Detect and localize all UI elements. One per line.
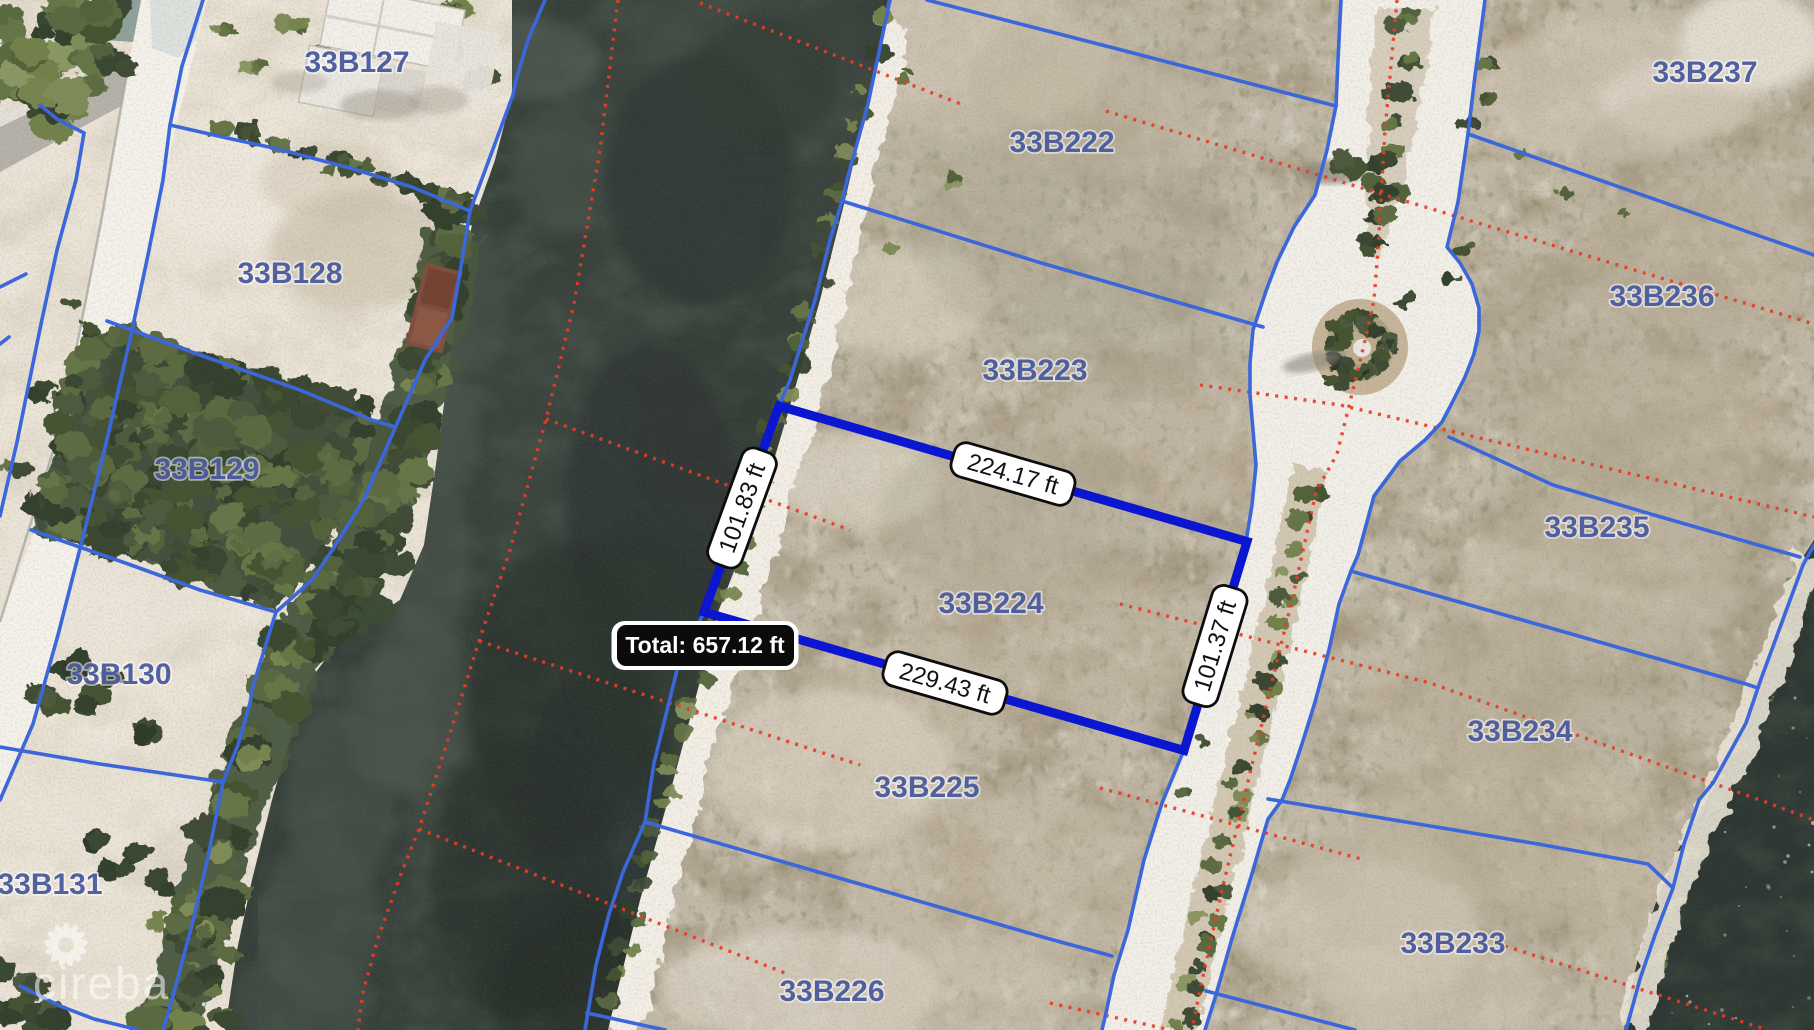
svg-text:33B225: 33B225 [874, 771, 979, 804]
svg-text:33B224: 33B224 [938, 587, 1043, 620]
svg-text:33B223: 33B223 [982, 354, 1087, 387]
svg-text:Total: 657.12 ft: Total: 657.12 ft [625, 632, 785, 658]
svg-text:33B222: 33B222 [1009, 126, 1114, 159]
svg-text:33B226: 33B226 [779, 975, 884, 1008]
svg-text:33B131: 33B131 [0, 868, 103, 901]
svg-text:33B237: 33B237 [1652, 56, 1757, 89]
svg-text:cireba: cireba [33, 957, 170, 1009]
svg-text:33B234: 33B234 [1467, 715, 1572, 748]
svg-text:33B129: 33B129 [154, 453, 259, 486]
svg-text:33B127: 33B127 [304, 46, 409, 79]
svg-text:33B235: 33B235 [1544, 511, 1649, 544]
svg-text:33B128: 33B128 [237, 257, 342, 290]
svg-text:33B236: 33B236 [1609, 280, 1714, 313]
svg-text:33B233: 33B233 [1400, 927, 1505, 960]
svg-text:33B130: 33B130 [66, 658, 171, 691]
